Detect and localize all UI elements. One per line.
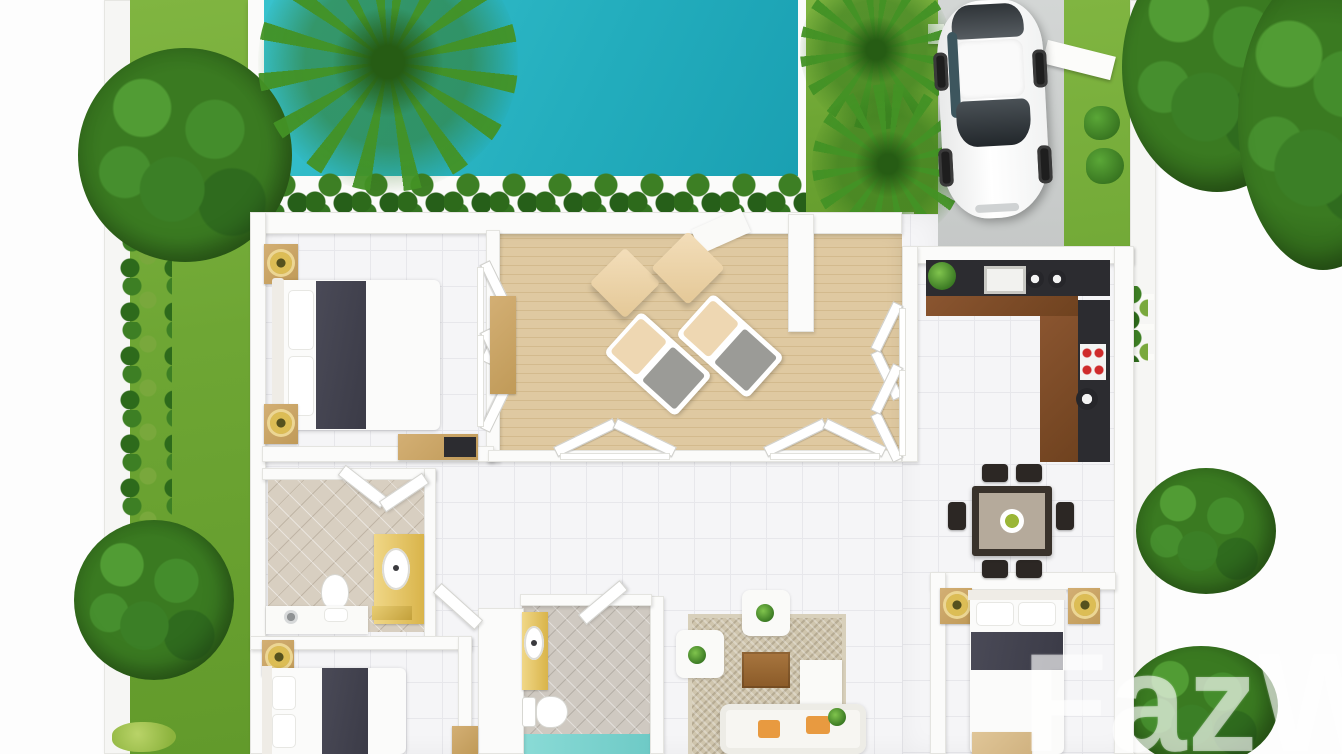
dining-chair xyxy=(982,560,1008,578)
coffee-tv-cabinet xyxy=(742,652,790,688)
round-basin xyxy=(1076,388,1098,410)
bathroom2-sink xyxy=(524,626,544,660)
car-wheel-rear-right xyxy=(1037,145,1053,184)
tree-top-right-2 xyxy=(1238,0,1342,270)
window-sill xyxy=(477,335,484,427)
sofa-cushion xyxy=(806,716,830,734)
bed-pillow xyxy=(272,676,296,710)
toilet-bowl xyxy=(536,696,568,728)
kitchen-cabinet-front xyxy=(926,296,1078,316)
bathroom2-shower-floor xyxy=(522,734,650,754)
towels xyxy=(324,608,348,622)
toilet-tank xyxy=(522,697,536,727)
dining-chair xyxy=(982,464,1008,482)
car-wheel-front-right xyxy=(1032,49,1048,88)
console-desk-top xyxy=(444,437,476,457)
toilet-bowl xyxy=(321,574,349,610)
window-sill xyxy=(899,370,906,456)
sink-drain xyxy=(531,640,537,646)
bathroom1-sink xyxy=(382,548,410,590)
bathroom1-counter xyxy=(266,606,368,634)
dining-table xyxy=(972,486,1052,556)
kitchen-basin xyxy=(1026,270,1044,288)
bed-pillow xyxy=(1018,602,1056,626)
sink-drain xyxy=(393,565,399,571)
dining-chair xyxy=(948,502,966,530)
bed-pillow xyxy=(976,602,1014,626)
faucet-icon xyxy=(284,610,298,624)
dresser xyxy=(452,726,478,754)
open-window-icon xyxy=(560,426,670,460)
foot-bench xyxy=(972,732,1032,754)
house-right-wall xyxy=(1114,246,1134,754)
dining-chair xyxy=(1056,502,1074,530)
wardrobe xyxy=(490,296,516,394)
table-lamp-icon xyxy=(946,594,968,616)
gold-box xyxy=(372,606,412,620)
bathroom2-right-wall xyxy=(650,596,664,754)
sofa-plant xyxy=(828,708,846,726)
bathroom2-wall-block xyxy=(478,608,524,754)
round-tree-bottom-left xyxy=(74,520,234,680)
bed-headboard xyxy=(968,590,1066,600)
car xyxy=(934,0,1051,221)
fruit-bowl xyxy=(1000,509,1024,533)
pool-pillar-wall xyxy=(788,214,814,332)
bed-pillow xyxy=(272,714,296,748)
dining-chair xyxy=(1016,464,1042,482)
window-sill xyxy=(770,453,880,460)
kitchen-plant xyxy=(928,262,956,290)
plant-pot xyxy=(756,604,774,622)
bed-headboard xyxy=(262,666,272,754)
tree-mid-right xyxy=(1136,468,1276,594)
sofa-cushion xyxy=(758,720,780,738)
table-lamp-icon xyxy=(270,412,292,434)
bed-pillow xyxy=(288,290,314,350)
kitchen-sink xyxy=(984,266,1026,294)
kitchen-counter-side xyxy=(1078,300,1110,462)
floor-plan-render: FazW xyxy=(0,0,1342,754)
car-wheel-front-left xyxy=(933,52,949,91)
bed-runner xyxy=(971,632,1063,670)
bathroom2-top-wall xyxy=(520,594,652,606)
dining-chair xyxy=(1016,560,1042,578)
bathroom1-right-wall xyxy=(424,468,436,644)
window-sill xyxy=(560,453,670,460)
kitchen-cabinet-side xyxy=(1040,316,1078,462)
plant-pot xyxy=(688,646,706,664)
side-unit xyxy=(800,660,842,710)
car-windshield xyxy=(956,98,1032,148)
car-wheel-rear-left xyxy=(938,148,954,187)
table-lamp-icon xyxy=(1074,594,1096,616)
bed-runner xyxy=(316,281,366,429)
table-lamp-icon xyxy=(268,646,290,668)
bathroom2-toilet xyxy=(522,696,568,726)
table-lamp-icon xyxy=(270,252,292,274)
open-window-icon xyxy=(872,370,906,456)
car-rear-window xyxy=(951,2,1025,40)
car-roof xyxy=(954,38,1025,99)
kitchen-basin xyxy=(1048,270,1066,288)
bed-runner xyxy=(322,668,368,754)
cooktop-stove xyxy=(1080,344,1106,380)
tree-bottom-right xyxy=(1124,646,1278,754)
open-window-icon xyxy=(770,426,880,460)
